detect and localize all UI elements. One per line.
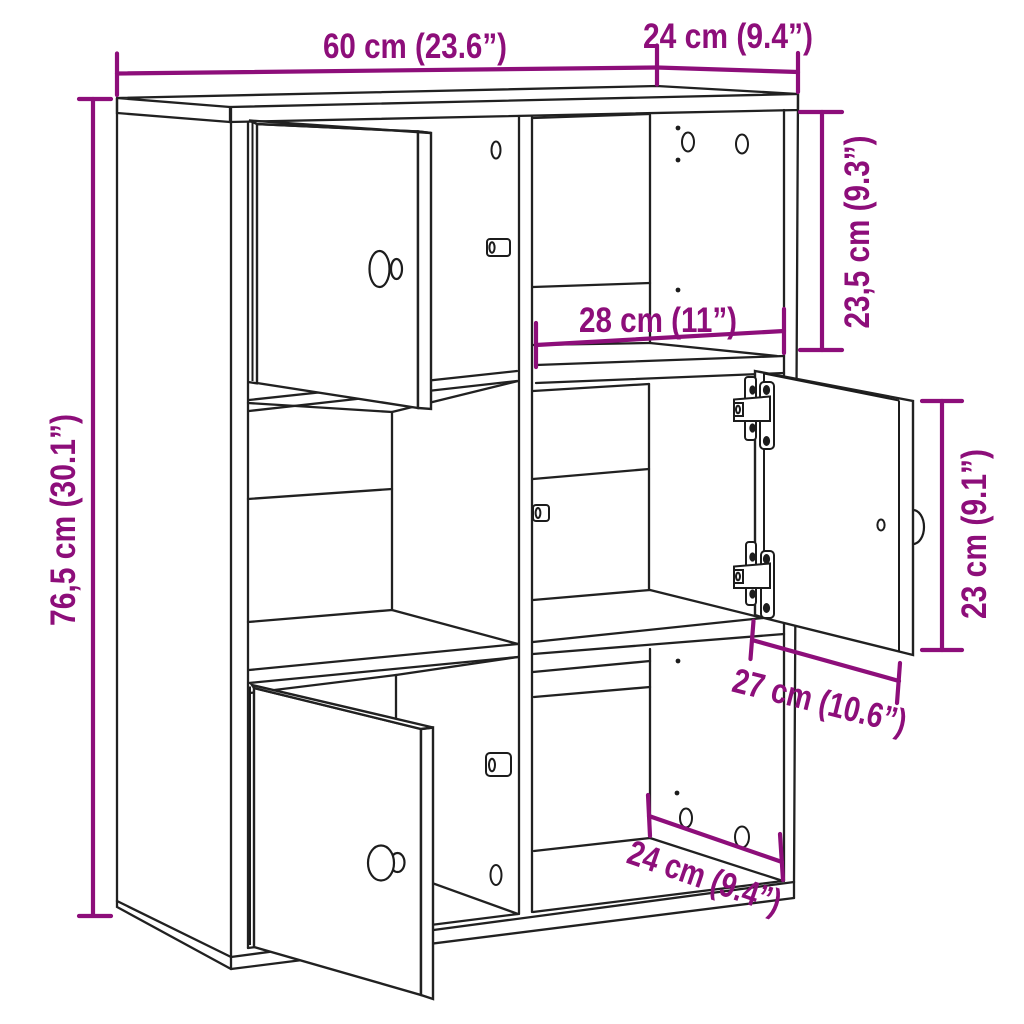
- svg-text:60 cm (23.6”): 60 cm (23.6”): [323, 27, 507, 66]
- svg-text:76,5 cm (30.1”): 76,5 cm (30.1”): [44, 414, 83, 626]
- svg-text:28 cm (11”): 28 cm (11”): [579, 301, 737, 340]
- svg-text:23 cm (9.1”): 23 cm (9.1”): [955, 449, 994, 619]
- svg-text:23,5 cm (9.3”): 23,5 cm (9.3”): [838, 136, 877, 329]
- svg-text:24 cm (9.4”): 24 cm (9.4”): [643, 17, 813, 56]
